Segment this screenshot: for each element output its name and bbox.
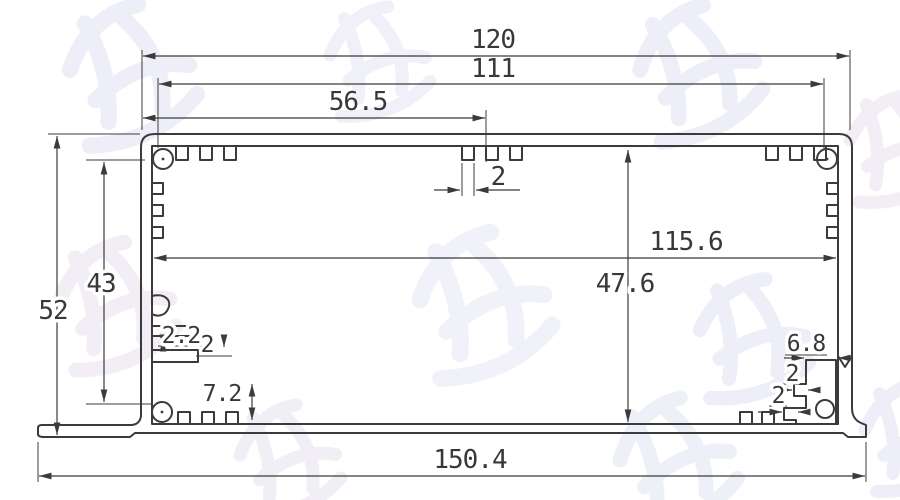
dim-fin-to-base: 7.2 — [203, 381, 252, 420]
dim-cavity-width-label: 115.6 — [649, 227, 722, 257]
dim-right-slot-width: 6.8 — [784, 331, 850, 358]
dim-base-width: 150.4 — [38, 442, 866, 482]
boss-center-dot — [162, 158, 165, 161]
dim-overall-height-label: 52 — [38, 296, 67, 326]
dim-cavity-height: 47.6 — [596, 150, 655, 422]
screw-boss-bottom-right — [816, 400, 834, 418]
dim-slot-offset-label: 56.5 — [329, 87, 388, 117]
dim-base-width-label: 150.4 — [433, 445, 507, 475]
boss-center-dot — [826, 158, 829, 161]
dim-top-slot-tooth: 2 — [434, 162, 520, 196]
dim-right-slot-width-label: 6.8 — [787, 331, 826, 357]
dim-top-inner-width-label: 111 — [471, 54, 515, 84]
dim-fin-gap-label: 2.2 — [162, 323, 201, 349]
wall-teeth-left — [152, 183, 163, 238]
dim-top-slot-tooth-label: 2 — [491, 162, 506, 192]
technical-drawing: 120 111 56.5 2 115.6 47.6 — [0, 0, 900, 500]
boss-center-dot — [161, 411, 164, 414]
ceiling-teeth — [176, 146, 826, 160]
dim-left-inner-height-label: 43 — [86, 269, 115, 299]
dim-fin-thickness: 2 — [196, 332, 232, 358]
dim-right-tooth-upper-label: 2 — [786, 361, 799, 387]
dim-overall-width-label: 120 — [471, 25, 515, 55]
profile-drawing-canvas: 120 111 56.5 2 115.6 47.6 — [0, 0, 900, 500]
v-groove-right-wall — [838, 330, 852, 367]
dim-cavity-height-label: 47.6 — [596, 269, 655, 299]
dim-fin-to-base-label: 7.2 — [203, 381, 242, 407]
dim-right-tooth-lower-label: 2 — [772, 383, 785, 409]
wall-teeth-right — [827, 183, 838, 238]
dim-fin-thickness-label: 2 — [201, 332, 214, 358]
dim-fin-gap: 2.2 — [158, 323, 202, 349]
